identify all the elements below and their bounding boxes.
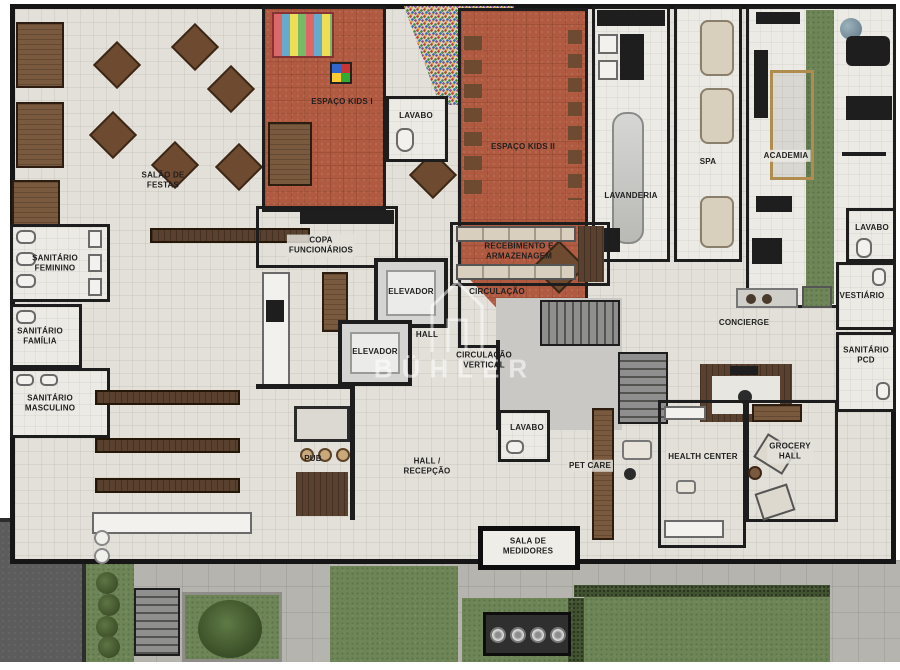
dumbbell-rack xyxy=(756,12,800,24)
pub-long-counter xyxy=(92,512,252,534)
concierge-counter xyxy=(736,288,798,308)
toy-blocks-icon xyxy=(330,62,352,84)
label-elevador-1: ELEVADOR xyxy=(388,287,433,297)
spa-lounger-icon xyxy=(700,88,734,144)
cable-machine-icon xyxy=(770,70,814,180)
room-sanitario-pcd xyxy=(836,332,896,412)
kids-2-chair-row-left xyxy=(464,36,482,196)
pub-bar-island xyxy=(294,406,350,442)
kids-table xyxy=(268,122,312,186)
wall-segment xyxy=(350,384,355,520)
monitor-icon xyxy=(730,366,758,375)
stool-icon xyxy=(94,548,110,564)
stairs-upper xyxy=(540,300,620,346)
pet-care-wood-wall xyxy=(592,408,614,540)
label-pet-care: PET CARE xyxy=(567,460,613,472)
pub-back-bar xyxy=(296,472,348,516)
dining-table xyxy=(178,30,212,64)
room-lavabo-kids xyxy=(386,96,448,162)
garden-right xyxy=(584,597,830,662)
pub-table xyxy=(95,390,240,405)
label-espaco-kids-2: ESPAÇO KIDS II xyxy=(491,142,555,152)
label-copa-funcionarios: COPA FUNCIONÁRIOS xyxy=(287,235,355,258)
equipment-box xyxy=(483,612,571,656)
bush-icon xyxy=(96,616,118,638)
bush-icon xyxy=(98,594,120,616)
barbell-icon xyxy=(842,152,886,156)
pet-grooming-table xyxy=(622,440,652,460)
label-sanitario-pcd: SANITÁRIO PCD xyxy=(843,346,889,367)
floor-plan-canvas: BÜHLER SALÃO DE FESTAS ESPAÇO KIDS I LAV… xyxy=(0,0,900,670)
garden-center-left xyxy=(330,566,458,662)
tree-icon xyxy=(198,600,262,658)
toilet-icon xyxy=(88,278,102,296)
bowl-icon xyxy=(762,294,772,304)
label-lavanderia: LAVANDERIA xyxy=(604,191,657,201)
storage-cabinet xyxy=(578,226,604,282)
stove-icon xyxy=(266,300,284,322)
washer-icon xyxy=(598,60,618,80)
toilet-icon xyxy=(88,230,102,248)
kids-2-chair-row-right xyxy=(568,30,582,200)
house-outline-icon xyxy=(424,272,490,356)
equipment-unit-icon xyxy=(490,627,506,643)
label-spa: SPA xyxy=(700,157,716,167)
hedge-horizontal xyxy=(574,585,830,597)
label-grocery-hall: GROCERY HALL xyxy=(767,441,813,464)
equipment-unit-icon xyxy=(510,627,526,643)
bush-icon xyxy=(98,636,120,658)
label-lavabo-pet: LAVABO xyxy=(510,423,544,433)
exam-stool xyxy=(676,480,696,494)
toilet-icon xyxy=(856,238,872,258)
dining-table xyxy=(100,48,134,82)
exterior-steps xyxy=(134,588,180,656)
dining-table xyxy=(214,72,248,106)
label-hall: HALL xyxy=(416,330,438,340)
ironing-board-icon xyxy=(612,112,644,244)
toilet-icon xyxy=(88,254,102,272)
urinal-icon xyxy=(40,374,58,386)
dining-table xyxy=(416,158,450,192)
pub-table xyxy=(95,478,240,493)
sink-icon xyxy=(16,310,36,324)
label-recebimento: RECEBIMENTO E ARMAZENAGEM xyxy=(484,242,553,263)
kids-rug xyxy=(272,12,334,58)
label-sanitario-masculino: SANITÁRIO MASCULINO xyxy=(25,394,75,415)
kitchen-counter xyxy=(262,272,290,388)
pub-table xyxy=(95,438,240,453)
wall-segment xyxy=(256,384,354,389)
label-hall-recepcao: HALL / RECEPÇÃO xyxy=(404,457,451,478)
health-cabinet xyxy=(664,520,724,538)
label-pub: PUB xyxy=(304,454,322,464)
equipment-unit-icon xyxy=(530,627,546,643)
planter-box xyxy=(802,286,832,308)
sink-icon xyxy=(16,230,36,244)
bowl-icon xyxy=(746,294,756,304)
washer-icon xyxy=(598,34,618,54)
label-circulacao-vertical: CIRCULAÇÃO VERTICAL xyxy=(456,351,512,372)
basket-icon xyxy=(748,466,762,480)
label-circulacao: CIRCULAÇÃO xyxy=(469,287,525,297)
toilet-icon xyxy=(396,128,414,152)
spa-lounger-icon xyxy=(700,20,734,76)
label-lavabo-direita: LAVABO xyxy=(855,223,889,233)
bush-row xyxy=(96,572,126,658)
label-academia: ACADEMIA xyxy=(762,150,811,162)
room-lavabo-pet xyxy=(498,410,550,462)
health-reception-counter xyxy=(664,406,706,420)
toilet-icon xyxy=(872,268,886,286)
bush-icon xyxy=(96,572,118,594)
gym-machine xyxy=(752,238,782,264)
chair-icon xyxy=(624,468,636,480)
label-concierge: CONCIERGE xyxy=(719,318,769,328)
laundry-counter xyxy=(597,10,665,26)
label-sala-de-medidores: SALA DE MEDIDORES xyxy=(503,537,553,558)
sink-icon xyxy=(506,440,524,454)
grocery-bench xyxy=(752,404,802,422)
urinal-icon xyxy=(16,374,34,386)
copa-counter xyxy=(300,210,394,224)
bar-stool-icon xyxy=(336,448,350,462)
dryer-stack xyxy=(620,34,644,80)
weight-rack xyxy=(754,50,768,118)
gym-mat xyxy=(846,96,892,120)
stool-icon xyxy=(94,530,110,546)
label-sanitario-familia: SANITÁRIO FAMÍLIA xyxy=(17,327,63,348)
sink-icon xyxy=(16,274,36,288)
dining-table xyxy=(96,118,130,152)
label-lavabo-kids: LAVABO xyxy=(399,111,433,121)
label-health-center: HEALTH CENTER xyxy=(666,451,740,463)
buffet-counter xyxy=(16,102,64,168)
dining-table xyxy=(222,150,256,184)
storage-shelf xyxy=(456,226,576,242)
buffet-counter xyxy=(16,22,64,88)
gym-mat xyxy=(846,36,890,66)
label-salao-de-festas: SALÃO DE FESTAS xyxy=(142,171,185,192)
label-elevador-2: ELEVADOR xyxy=(352,347,397,357)
spa-lounger-icon xyxy=(700,196,734,248)
gym-bench xyxy=(756,196,792,212)
label-vestiario: VESTIÁRIO xyxy=(840,291,885,301)
toilet-icon xyxy=(876,382,890,400)
label-espaco-kids-1: ESPAÇO KIDS I xyxy=(311,97,373,107)
label-sanitario-feminino: SANITÁRIO FEMININO xyxy=(32,254,78,275)
equipment-unit-icon xyxy=(550,627,566,643)
bottom-margin xyxy=(0,662,900,670)
